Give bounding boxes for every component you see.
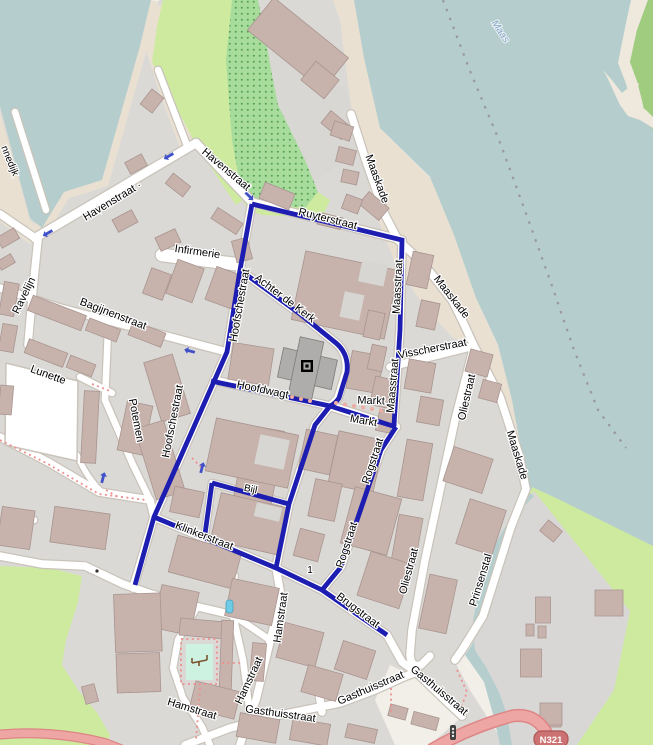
svg-text:N321: N321: [540, 735, 563, 745]
svg-text:Markt: Markt: [357, 395, 385, 408]
svg-text:1: 1: [307, 565, 313, 576]
